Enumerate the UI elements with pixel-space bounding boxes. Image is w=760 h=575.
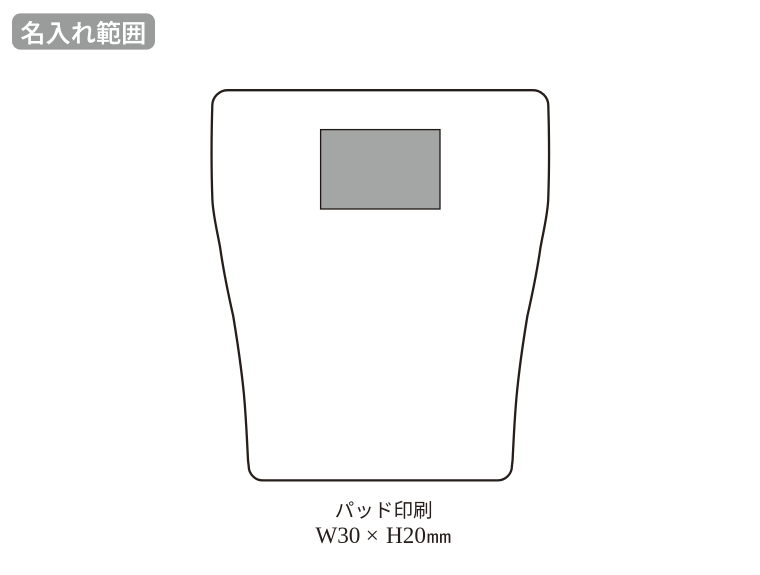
svg-text:W30: W30 — [315, 523, 360, 549]
svg-text:H20: H20 — [386, 523, 426, 549]
svg-text:×: × — [366, 523, 379, 549]
